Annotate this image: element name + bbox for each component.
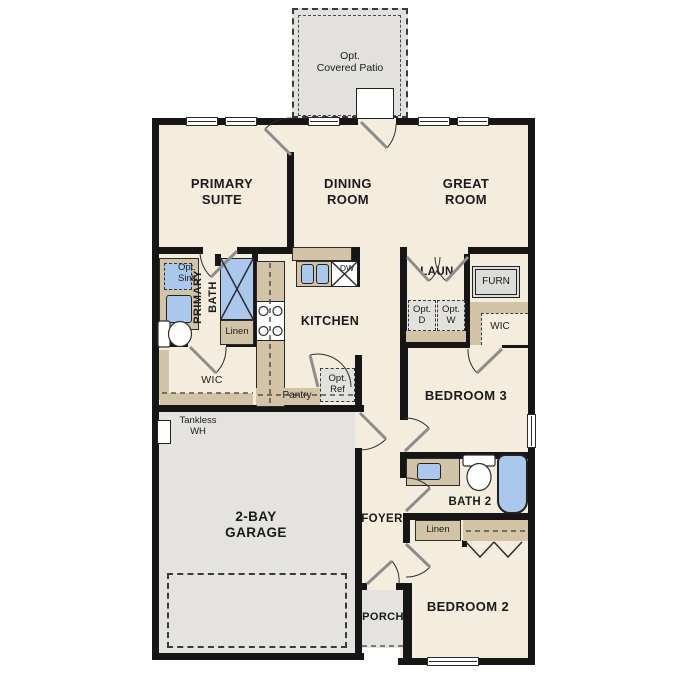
window-bedroom3	[527, 414, 536, 448]
linen-primary: Linen	[220, 320, 254, 345]
linen-hall-label: Linen	[426, 525, 449, 536]
primary-bath-label: PRIMARY BATH	[191, 252, 221, 342]
furnace-inner: FURN	[475, 269, 517, 295]
bath2-sink	[417, 463, 441, 480]
outer-wall-left	[152, 118, 159, 660]
window-suite-2	[225, 117, 257, 126]
bath2-label: BATH 2	[438, 495, 502, 509]
greatroom-south-wall-a	[400, 247, 407, 254]
garage-label: 2-BAY GARAGE	[206, 509, 306, 542]
bedroom3-label: BEDROOM 3	[410, 388, 522, 404]
great-room-label: GREAT ROOM	[424, 176, 508, 208]
patio-label: Opt. Covered Patio	[294, 50, 406, 74]
opt-washer-label: Opt. W	[442, 305, 460, 327]
linen-primary-label: Linen	[225, 327, 248, 338]
kitchen-sink-basin-right	[316, 264, 329, 284]
hall-foyer-floor	[355, 247, 403, 590]
opt-dryer: Opt. D	[408, 300, 436, 331]
front-wall-a	[355, 583, 367, 590]
bath-wic-wall-a	[159, 340, 188, 347]
garage-wall-bottom	[152, 653, 364, 660]
pantry-label: Pantry	[272, 390, 322, 402]
bath2-south-wall	[403, 513, 528, 520]
tankless-water-heater	[157, 420, 171, 444]
wic1-label: WIC	[182, 374, 242, 387]
garage-bay-outline	[167, 573, 347, 648]
furnace-label: FURN	[482, 276, 510, 288]
pantry-east-wall	[355, 355, 362, 412]
opt-ref-label: Opt. Ref	[329, 374, 347, 396]
primary-sink	[166, 295, 192, 323]
opt-washer: Opt. W	[437, 300, 465, 331]
laundry-west-wall	[400, 254, 407, 340]
suite-dining-wall	[287, 152, 294, 254]
tankless-label: Tankless WH	[172, 416, 224, 438]
linen-hall: Linen	[415, 520, 461, 541]
window-dining	[308, 117, 340, 126]
dining-kitchen-counter	[292, 247, 352, 261]
wic1-shelf-bottom	[160, 393, 253, 405]
kitchen-label: KITCHEN	[294, 314, 366, 329]
greatroom-south-wall-b	[468, 247, 528, 254]
primary-suite-label: PRIMARY SUITE	[172, 176, 272, 208]
foyer-label: FOYER	[354, 512, 410, 526]
floor-plan: Opt. Covered Patio Opt. Sink Linen PRIMA…	[0, 0, 687, 687]
primary-shower	[220, 258, 254, 320]
bedroom2-label: BEDROOM 2	[412, 599, 524, 615]
dining-room-label: DINING ROOM	[306, 176, 390, 208]
suite-south-wall-b	[237, 247, 292, 254]
laundry-label: LAUN	[410, 265, 464, 279]
outer-wall-right	[528, 118, 535, 665]
bed3-west-wall	[400, 348, 408, 420]
kitchen-sink-basin-left	[301, 264, 314, 284]
window-suite-1	[186, 117, 218, 126]
stove	[256, 301, 285, 341]
patio-step	[356, 88, 394, 119]
window-bedroom2	[427, 657, 479, 666]
patio-door-gap	[358, 118, 396, 125]
laundry-counter	[406, 331, 466, 342]
wic3-label: WIC	[478, 321, 522, 333]
porch-label: PORCH	[359, 611, 407, 624]
window-great-2	[457, 117, 489, 126]
dishwasher-label: DW	[337, 263, 357, 273]
closet2-left-stub	[462, 540, 467, 547]
furnace: FURN	[472, 266, 520, 298]
garage-east-wall	[355, 448, 362, 660]
window-great-1	[418, 117, 450, 126]
opt-dryer-label: Opt. D	[413, 305, 431, 327]
bed2-closet-shelf	[463, 520, 528, 541]
opt-ref: Opt. Ref	[320, 368, 355, 402]
